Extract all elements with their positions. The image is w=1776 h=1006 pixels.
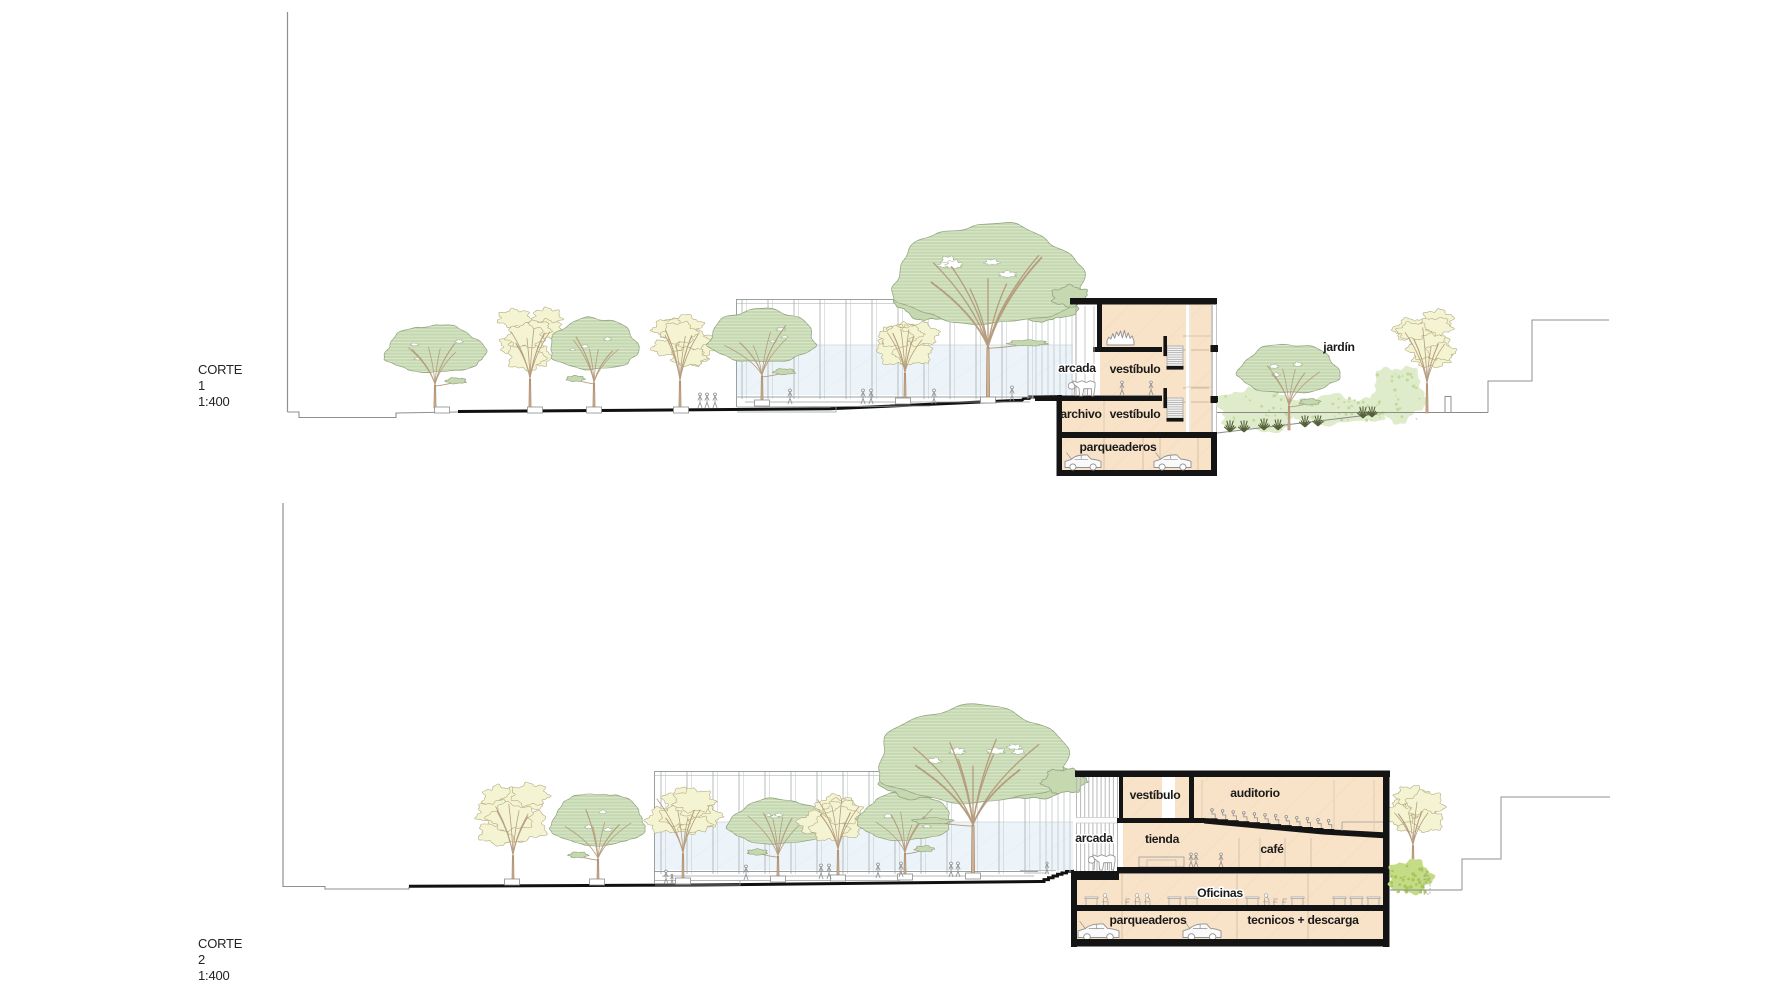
svg-text:archivo: archivo — [1060, 407, 1101, 421]
svg-text:vestíbulo: vestíbulo — [1110, 407, 1161, 421]
svg-text:jardín: jardín — [1322, 340, 1354, 354]
svg-text:arcada: arcada — [1058, 361, 1096, 375]
svg-text:1:400: 1:400 — [198, 394, 230, 409]
svg-text:1:400: 1:400 — [198, 968, 230, 983]
svg-text:1: 1 — [198, 378, 205, 393]
svg-text:vestíbulo: vestíbulo — [1110, 362, 1161, 376]
svg-text:arcada: arcada — [1075, 831, 1113, 845]
svg-text:parqueaderos: parqueaderos — [1080, 440, 1158, 454]
svg-text:tecnicos + descarga: tecnicos + descarga — [1247, 913, 1359, 927]
svg-text:auditorio: auditorio — [1230, 786, 1279, 800]
svg-text:2: 2 — [198, 952, 205, 967]
svg-text:CORTE: CORTE — [198, 362, 243, 377]
svg-text:café: café — [1260, 842, 1284, 856]
svg-text:vestíbulo: vestíbulo — [1130, 788, 1181, 802]
svg-text:CORTE: CORTE — [198, 936, 243, 951]
svg-text:tienda: tienda — [1145, 832, 1180, 846]
svg-text:Oficinas: Oficinas — [1197, 886, 1243, 900]
svg-text:parqueaderos: parqueaderos — [1110, 913, 1188, 927]
